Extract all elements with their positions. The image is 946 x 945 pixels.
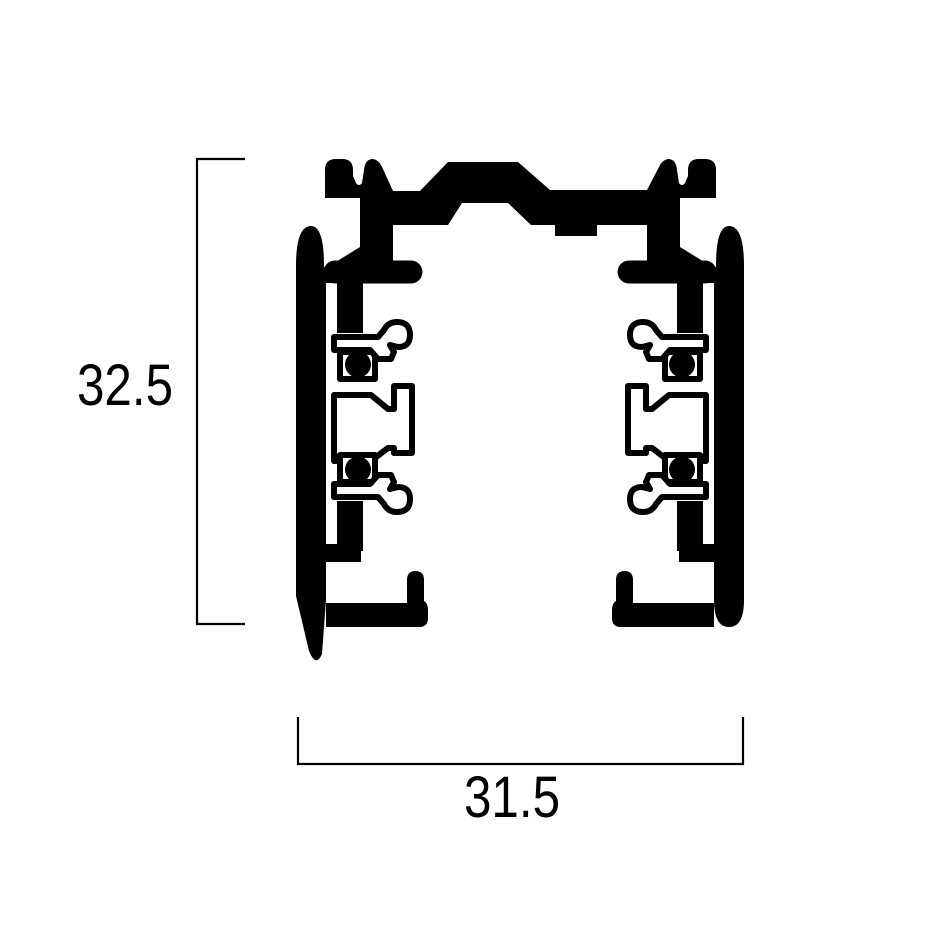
profile-right-wall	[714, 226, 744, 627]
drawing-canvas: 32.5 31.5	[0, 0, 946, 945]
profile-left-wall	[296, 226, 326, 660]
profile-left-inner	[326, 272, 428, 627]
upper-lug	[337, 283, 363, 333]
insulator-assembly	[334, 322, 412, 512]
conductor-dot-upper	[345, 352, 371, 378]
wall-connector	[326, 544, 361, 562]
technical-drawing: 32.5 31.5	[0, 0, 946, 945]
profile-geometry	[296, 159, 744, 660]
width-dimension-label: 31.5	[464, 765, 560, 830]
height-dimension-line	[197, 159, 245, 624]
profile-right-inner	[612, 272, 714, 627]
height-dimension	[197, 159, 245, 624]
width-dimension	[298, 717, 743, 764]
height-dimension-label: 32.5	[77, 353, 173, 418]
lower-lug	[337, 501, 363, 551]
insulator-middle-pocket	[334, 386, 412, 461]
width-dimension-line	[298, 717, 743, 764]
conductor-dot-lower	[345, 457, 371, 483]
bottom-hook	[326, 571, 428, 627]
